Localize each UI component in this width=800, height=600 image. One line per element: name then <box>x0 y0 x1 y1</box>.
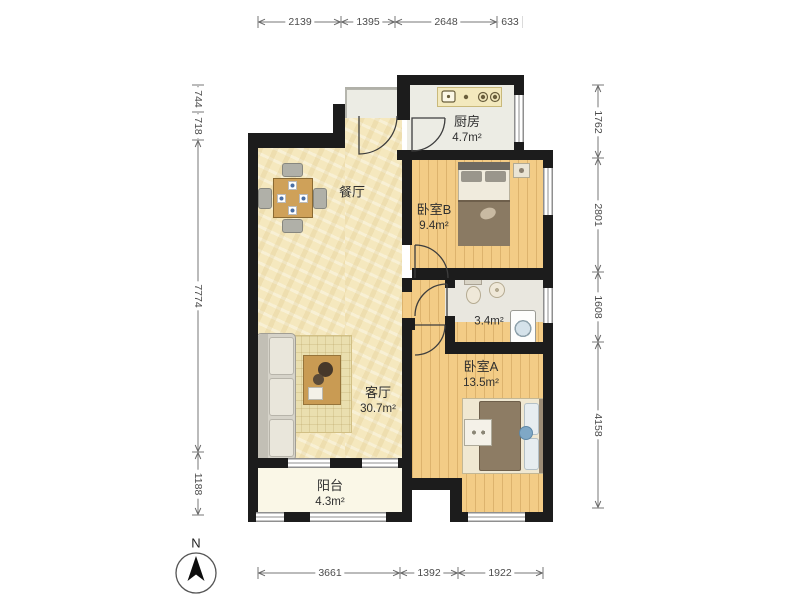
dimension-label: 1395 <box>353 16 382 28</box>
wall <box>402 318 415 330</box>
toilet-bowl <box>466 286 481 304</box>
room-label-living: 客厅 30.7m² <box>360 385 396 417</box>
room-label-bedroom-b: 卧室B 9.4m² <box>417 202 452 234</box>
bathroom-window <box>543 288 553 323</box>
wall <box>402 318 412 458</box>
kitchen-window <box>514 95 524 142</box>
bed-a-pillow <box>524 438 539 470</box>
balcony-window <box>310 512 386 522</box>
balcony-door-window <box>288 458 330 468</box>
dimension-label: 1608 <box>592 292 604 321</box>
compass-north-label: N <box>191 536 200 551</box>
table-decor <box>313 374 324 385</box>
room-label-bathroom: 3.4m² <box>474 315 503 330</box>
dining-chair <box>258 188 272 209</box>
dimension-label: 1188 <box>192 470 204 499</box>
dimension-label: 1392 <box>414 567 443 579</box>
wall <box>543 354 553 522</box>
nightstand <box>513 163 530 178</box>
dresser <box>464 419 492 446</box>
bed-b-blanket <box>458 200 510 246</box>
bed-a-accent-pillow <box>519 426 533 440</box>
wall <box>333 104 345 148</box>
bed-b-pillow <box>461 171 482 182</box>
bed-b-headboard <box>458 162 510 170</box>
sofa-back <box>257 334 268 460</box>
dining-chair <box>282 163 303 177</box>
room-name: 厨房 <box>452 114 481 131</box>
dining-chair <box>282 219 303 233</box>
wall <box>402 478 462 490</box>
wall <box>248 458 288 468</box>
wall <box>402 150 412 245</box>
dimension-label: 2139 <box>285 16 314 28</box>
place-setting <box>288 181 297 190</box>
notch-cutout <box>412 490 450 512</box>
sofa-cushion <box>269 419 294 457</box>
sofa-cushion <box>269 337 294 375</box>
place-setting <box>277 194 286 203</box>
room-name: 卧室A <box>463 359 499 376</box>
wall <box>402 278 412 292</box>
place-setting <box>288 206 297 215</box>
dimension-label: 633 <box>498 16 522 28</box>
bedroom-a-window <box>468 512 525 522</box>
dimension-label: 1762 <box>592 107 604 136</box>
kitchen-counter <box>437 87 502 107</box>
table-tray <box>308 387 323 400</box>
room-area: 13.5m² <box>463 376 499 391</box>
sofa-cushion <box>269 378 294 416</box>
room-label-dining: 餐厅 <box>339 185 365 202</box>
room-name: 阳台 <box>315 478 344 495</box>
room-name: 餐厅 <box>339 185 365 202</box>
dimension-label: 4158 <box>592 410 604 439</box>
room-label-balcony: 阳台 4.3m² <box>315 478 344 510</box>
wall <box>397 150 553 160</box>
dimension-label: 7774 <box>192 281 204 310</box>
room-area: 4.7m² <box>452 131 481 146</box>
dimension-label: 718 <box>192 114 204 138</box>
dimension-label: 2801 <box>592 200 604 229</box>
dimension-label: 744 <box>192 87 204 111</box>
floor-plan: 餐厅 厨房 4.7m² 卧室B 9.4m² 3.4m² 客厅 30.7m² 卧室… <box>0 0 800 600</box>
dimension-label: 1922 <box>485 567 514 579</box>
entry-vestibule-floor <box>345 88 399 118</box>
bed-b-pillow <box>485 171 506 182</box>
room-area: 3.4m² <box>474 315 503 330</box>
sink <box>489 282 505 298</box>
wall <box>397 75 522 85</box>
room-area: 30.7m² <box>360 402 396 417</box>
compass-icon <box>176 553 216 593</box>
wall <box>248 133 345 148</box>
room-name: 客厅 <box>360 385 396 402</box>
wall <box>330 458 362 468</box>
balcony-door-window <box>362 458 398 468</box>
dimension-label: 2648 <box>431 16 460 28</box>
bedroom-b-window <box>543 168 553 215</box>
wall <box>412 268 543 280</box>
room-name: 卧室B <box>417 202 452 219</box>
room-label-bedroom-a: 卧室A 13.5m² <box>463 359 499 391</box>
wall <box>445 280 455 288</box>
dining-chair <box>313 188 327 209</box>
room-label-kitchen: 厨房 4.7m² <box>452 114 481 146</box>
place-setting <box>299 194 308 203</box>
room-area: 9.4m² <box>417 219 452 234</box>
balcony-window <box>256 512 284 522</box>
dimension-label: 3661 <box>315 567 344 579</box>
room-area: 4.3m² <box>315 495 344 510</box>
washing-machine <box>510 310 536 344</box>
wall <box>445 342 553 354</box>
